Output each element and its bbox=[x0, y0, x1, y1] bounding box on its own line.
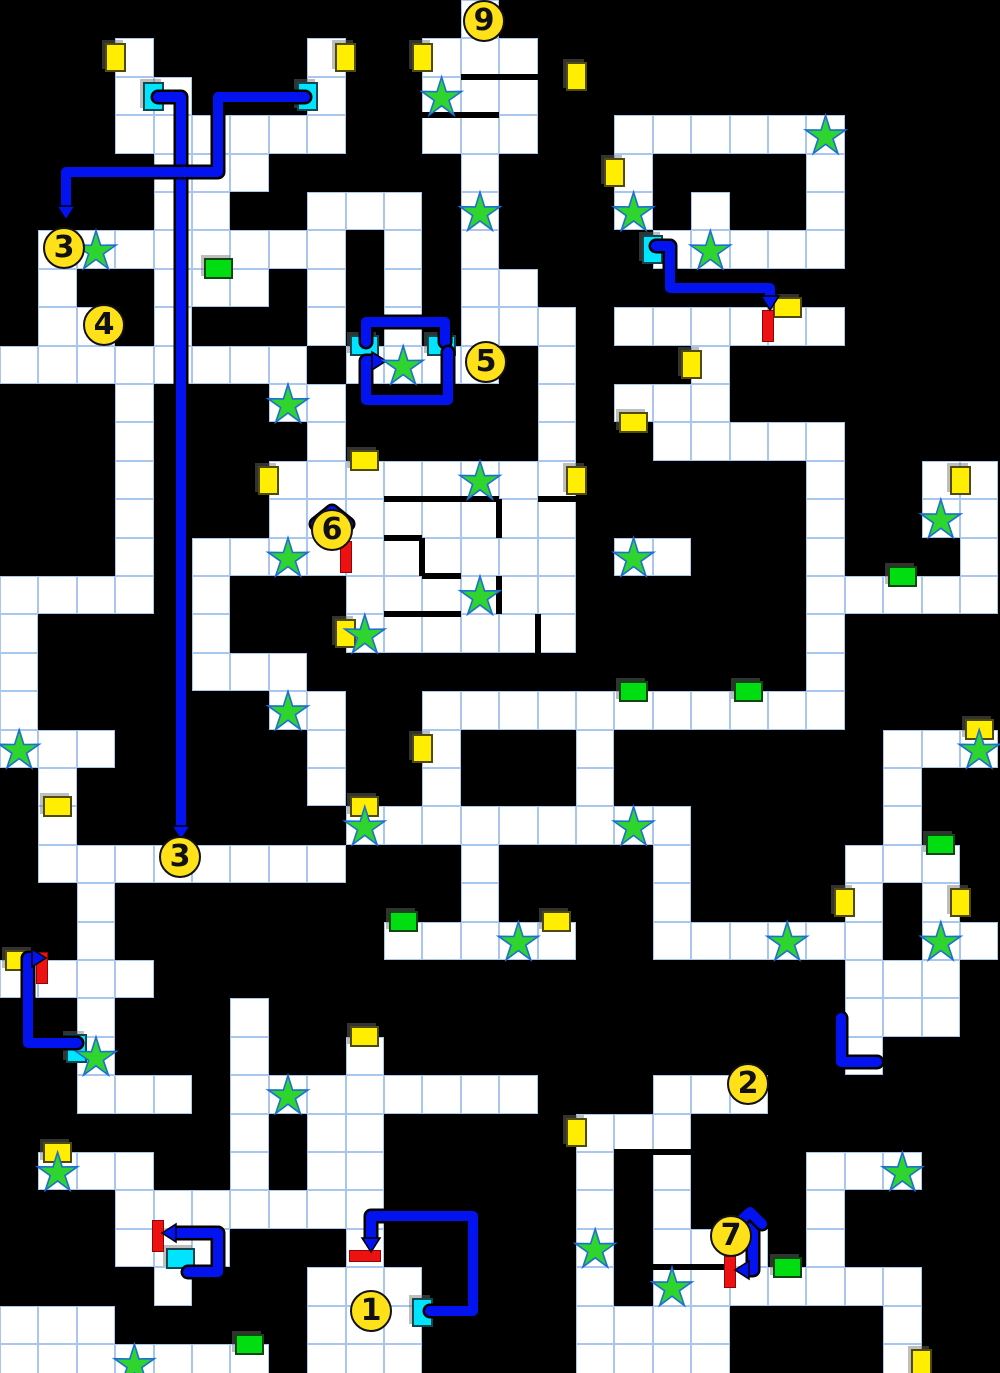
floor-cell bbox=[806, 1190, 844, 1228]
floor-cell bbox=[230, 269, 268, 307]
dungeon-map: 934563271 bbox=[0, 0, 1000, 1373]
floor-cell bbox=[115, 499, 153, 537]
floor-cell bbox=[154, 230, 192, 268]
floor-cell bbox=[77, 998, 115, 1036]
door-green-icon bbox=[773, 1257, 802, 1278]
floor-cell bbox=[154, 346, 192, 384]
floor-cell bbox=[230, 346, 268, 384]
floor-cell bbox=[422, 499, 460, 537]
floor-cell bbox=[422, 614, 460, 652]
floor-cell bbox=[691, 307, 729, 345]
floor-cell bbox=[384, 346, 422, 384]
floor-cell bbox=[461, 230, 499, 268]
lock-bar-red-icon bbox=[152, 1220, 164, 1252]
floor-cell bbox=[538, 538, 576, 576]
floor-cell bbox=[806, 922, 844, 960]
floor-cell bbox=[499, 38, 537, 76]
floor-cell bbox=[691, 115, 729, 153]
floor-cell bbox=[922, 998, 960, 1036]
floor-cell bbox=[269, 691, 307, 729]
floor-cell bbox=[614, 538, 652, 576]
floor-cell bbox=[115, 1152, 153, 1190]
floor-cell bbox=[883, 806, 921, 844]
floor-cell bbox=[77, 922, 115, 960]
floor-cell bbox=[307, 307, 345, 345]
floor-cell bbox=[422, 922, 460, 960]
maze-wall bbox=[422, 112, 499, 118]
door-green-icon bbox=[734, 681, 763, 702]
floor-cell bbox=[307, 1114, 345, 1152]
floor-cell bbox=[653, 1344, 691, 1373]
lock-bar-red-icon bbox=[724, 1256, 736, 1288]
door-cyan-icon bbox=[143, 82, 164, 111]
floor-cell bbox=[461, 115, 499, 153]
floor-cell bbox=[499, 269, 537, 307]
floor-cell bbox=[269, 1075, 307, 1113]
floor-cell bbox=[346, 1114, 384, 1152]
stairs-number: 2 bbox=[738, 1069, 759, 1099]
stairs-number: 4 bbox=[94, 310, 115, 340]
floor-cell bbox=[422, 461, 460, 499]
floor-cell bbox=[768, 230, 806, 268]
floor-cell bbox=[653, 691, 691, 729]
floor-cell bbox=[115, 1075, 153, 1113]
door-yellow-icon bbox=[350, 450, 379, 471]
floor-cell bbox=[77, 1075, 115, 1113]
floor-cell bbox=[384, 499, 422, 537]
floor-cell bbox=[307, 730, 345, 768]
floor-cell bbox=[538, 806, 576, 844]
stairs-marker: 6 bbox=[311, 509, 353, 551]
maze-wall bbox=[384, 535, 422, 541]
floor-cell bbox=[845, 922, 883, 960]
door-yellow-icon bbox=[335, 619, 356, 648]
floor-cell bbox=[922, 922, 960, 960]
floor-cell bbox=[346, 1075, 384, 1113]
door-yellow-icon bbox=[950, 466, 971, 495]
door-cyan-icon bbox=[66, 1034, 87, 1063]
floor-cell bbox=[0, 691, 38, 729]
floor-cell bbox=[806, 461, 844, 499]
floor-cell bbox=[806, 499, 844, 537]
floor-cell bbox=[230, 538, 268, 576]
floor-cell bbox=[499, 614, 537, 652]
floor-cell bbox=[422, 691, 460, 729]
floor-cell bbox=[192, 653, 230, 691]
floor-cell bbox=[960, 576, 998, 614]
floor-cell bbox=[230, 1075, 268, 1113]
floor-cell bbox=[192, 1190, 230, 1228]
floor-cell bbox=[845, 1152, 883, 1190]
floor-cell bbox=[691, 1075, 729, 1113]
floor-cell bbox=[77, 576, 115, 614]
stairs-number: 6 bbox=[322, 515, 343, 545]
floor-cell bbox=[653, 883, 691, 921]
door-yellow-icon bbox=[773, 297, 802, 318]
floor-cell bbox=[38, 346, 76, 384]
floor-cell bbox=[883, 998, 921, 1036]
floor-cell bbox=[538, 384, 576, 422]
floor-cell bbox=[883, 960, 921, 998]
floor-cell bbox=[768, 691, 806, 729]
floor-cell bbox=[576, 1229, 614, 1267]
floor-cell bbox=[653, 1190, 691, 1228]
floor-cell bbox=[845, 845, 883, 883]
floor-cell bbox=[922, 499, 960, 537]
door-yellow-icon bbox=[412, 734, 433, 763]
floor-cell bbox=[461, 576, 499, 614]
floor-cell bbox=[115, 422, 153, 460]
door-yellow-icon bbox=[950, 888, 971, 917]
floor-cell bbox=[538, 691, 576, 729]
floor-cell bbox=[538, 576, 576, 614]
floor-cell bbox=[538, 422, 576, 460]
maze-wall bbox=[461, 74, 538, 80]
floor-cell bbox=[0, 346, 38, 384]
floor-cell bbox=[806, 576, 844, 614]
floor-cell bbox=[614, 1306, 652, 1344]
shortcut-arrowhead-icon bbox=[57, 206, 75, 220]
floor-cell bbox=[461, 614, 499, 652]
stairs-marker: 3 bbox=[159, 836, 201, 878]
floor-cell bbox=[883, 1306, 921, 1344]
floor-cell bbox=[691, 422, 729, 460]
floor-cell bbox=[653, 922, 691, 960]
floor-cell bbox=[307, 1306, 345, 1344]
stairs-number: 7 bbox=[721, 1221, 742, 1251]
floor-cell bbox=[499, 307, 537, 345]
door-yellow-icon bbox=[43, 796, 72, 817]
floor-cell bbox=[499, 499, 537, 537]
door-green-icon bbox=[926, 834, 955, 855]
floor-cell bbox=[192, 346, 230, 384]
floor-cell bbox=[154, 1075, 192, 1113]
floor-cell bbox=[614, 1114, 652, 1152]
floor-cell bbox=[576, 1190, 614, 1228]
floor-cell bbox=[576, 730, 614, 768]
stairs-number: 3 bbox=[170, 842, 191, 872]
floor-cell bbox=[0, 576, 38, 614]
floor-cell bbox=[691, 384, 729, 422]
floor-cell bbox=[115, 960, 153, 998]
floor-cell bbox=[653, 538, 691, 576]
floor-cell bbox=[922, 576, 960, 614]
floor-cell bbox=[806, 422, 844, 460]
floor-cell bbox=[461, 307, 499, 345]
floor-cell bbox=[307, 768, 345, 806]
floor-cell bbox=[384, 1075, 422, 1113]
floor-cell bbox=[653, 1229, 691, 1267]
floor-cell bbox=[422, 576, 460, 614]
floor-cell bbox=[845, 960, 883, 998]
door-cyan-icon bbox=[297, 82, 318, 111]
floor-cell bbox=[38, 269, 76, 307]
door-yellow-icon bbox=[566, 62, 587, 91]
floor-cell bbox=[499, 691, 537, 729]
floor-cell bbox=[269, 845, 307, 883]
floor-cell bbox=[461, 461, 499, 499]
floor-cell bbox=[499, 461, 537, 499]
floor-cell bbox=[230, 653, 268, 691]
floor-cell bbox=[806, 1229, 844, 1267]
floor-cell bbox=[422, 1075, 460, 1113]
floor-cell bbox=[346, 1190, 384, 1228]
floor-cell bbox=[653, 115, 691, 153]
floor-cell bbox=[307, 1075, 345, 1113]
floor-cell bbox=[384, 614, 422, 652]
door-yellow-icon bbox=[335, 43, 356, 72]
floor-cell bbox=[38, 576, 76, 614]
floor-cell bbox=[77, 346, 115, 384]
floor-cell bbox=[307, 845, 345, 883]
floor-cell bbox=[384, 461, 422, 499]
stairs-marker: 3 bbox=[43, 227, 85, 269]
floor-cell bbox=[883, 1267, 921, 1305]
floor-cell bbox=[576, 1344, 614, 1373]
floor-cell bbox=[499, 115, 537, 153]
floor-cell bbox=[192, 538, 230, 576]
door-yellow-icon bbox=[43, 1142, 72, 1163]
door-yellow-icon bbox=[911, 1349, 932, 1373]
stairs-marker: 7 bbox=[710, 1215, 752, 1257]
floor-cell bbox=[115, 1344, 153, 1373]
floor-cell bbox=[384, 307, 422, 345]
floor-cell bbox=[115, 538, 153, 576]
door-green-icon bbox=[235, 1334, 264, 1355]
floor-cell bbox=[576, 1152, 614, 1190]
floor-cell bbox=[883, 730, 921, 768]
maze-wall bbox=[538, 496, 576, 502]
floor-cell bbox=[883, 1152, 921, 1190]
door-yellow-icon bbox=[105, 43, 126, 72]
stairs-marker: 4 bbox=[83, 304, 125, 346]
door-yellow-icon bbox=[566, 1118, 587, 1147]
floor-cell bbox=[346, 1344, 384, 1373]
maze-wall bbox=[653, 1264, 730, 1270]
stairs-number: 3 bbox=[54, 233, 75, 263]
floor-cell bbox=[422, 768, 460, 806]
floor-cell bbox=[691, 1344, 729, 1373]
floor-cell bbox=[806, 154, 844, 192]
floor-cell bbox=[730, 230, 768, 268]
floor-cell bbox=[0, 653, 38, 691]
floor-cell bbox=[806, 307, 844, 345]
stairs-marker: 5 bbox=[465, 341, 507, 383]
floor-cell bbox=[77, 1344, 115, 1373]
floor-cell bbox=[192, 192, 230, 230]
floor-cell bbox=[461, 154, 499, 192]
floor-cell bbox=[307, 1190, 345, 1228]
floor-cell bbox=[806, 538, 844, 576]
floor-cell bbox=[154, 192, 192, 230]
lock-bar-red-icon bbox=[349, 1250, 381, 1262]
floor-cell bbox=[806, 230, 844, 268]
lock-bar-red-icon bbox=[762, 310, 774, 342]
floor-cell bbox=[38, 1344, 76, 1373]
door-yellow-icon bbox=[604, 158, 625, 187]
floor-cell bbox=[499, 806, 537, 844]
floor-cell bbox=[653, 384, 691, 422]
floor-cell bbox=[230, 845, 268, 883]
floor-cell bbox=[499, 77, 537, 115]
floor-cell bbox=[269, 346, 307, 384]
floor-cell bbox=[230, 1037, 268, 1075]
floor-cell bbox=[384, 1344, 422, 1373]
floor-cell bbox=[614, 806, 652, 844]
floor-cell bbox=[115, 115, 153, 153]
maze-wall bbox=[419, 538, 425, 576]
maze-wall bbox=[496, 576, 502, 614]
floor-cell bbox=[653, 1306, 691, 1344]
stairs-marker: 9 bbox=[463, 0, 505, 42]
floor-cell bbox=[307, 461, 345, 499]
door-cyan-icon bbox=[412, 1298, 433, 1327]
maze-wall bbox=[384, 611, 461, 617]
floor-cell bbox=[461, 499, 499, 537]
floor-cell bbox=[192, 1344, 230, 1373]
floor-cell bbox=[192, 115, 230, 153]
floor-cell bbox=[115, 1190, 153, 1228]
floor-cell bbox=[806, 691, 844, 729]
maze-wall bbox=[496, 499, 502, 537]
door-cyan-icon bbox=[642, 235, 663, 264]
floor-cell bbox=[307, 192, 345, 230]
floor-cell bbox=[38, 307, 76, 345]
floor-cell bbox=[230, 998, 268, 1036]
floor-cell bbox=[461, 77, 499, 115]
floor-cell bbox=[384, 538, 422, 576]
floor-cell bbox=[691, 1306, 729, 1344]
floor-cell bbox=[806, 1267, 844, 1305]
floor-cell bbox=[806, 115, 844, 153]
floor-cell bbox=[691, 922, 729, 960]
floor-cell bbox=[230, 115, 268, 153]
floor-cell bbox=[614, 192, 652, 230]
floor-cell bbox=[307, 691, 345, 729]
door-yellow-icon bbox=[412, 43, 433, 72]
floor-cell bbox=[538, 346, 576, 384]
floor-cell bbox=[38, 845, 76, 883]
door-yellow-icon bbox=[566, 466, 587, 495]
floor-cell bbox=[768, 115, 806, 153]
floor-cell bbox=[422, 538, 460, 576]
floor-cell bbox=[346, 576, 384, 614]
stairs-number: 5 bbox=[476, 347, 497, 377]
floor-cell bbox=[230, 230, 268, 268]
door-cyan-icon bbox=[166, 1248, 195, 1269]
floor-cell bbox=[77, 1152, 115, 1190]
floor-cell bbox=[576, 691, 614, 729]
floor-cell bbox=[691, 192, 729, 230]
floor-cell bbox=[154, 307, 192, 345]
floor-cell bbox=[806, 614, 844, 652]
floor-cell bbox=[653, 1075, 691, 1113]
floor-cell bbox=[691, 691, 729, 729]
floor-cell bbox=[115, 845, 153, 883]
floor-cell bbox=[115, 384, 153, 422]
floor-cell bbox=[307, 422, 345, 460]
floor-cell bbox=[730, 922, 768, 960]
lock-bar-red-icon bbox=[36, 952, 48, 984]
floor-cell bbox=[614, 307, 652, 345]
stairs-number: 9 bbox=[474, 6, 495, 36]
floor-cell bbox=[384, 230, 422, 268]
stairs-marker: 2 bbox=[727, 1063, 769, 1105]
door-green-icon bbox=[204, 258, 233, 279]
floor-cell bbox=[422, 806, 460, 844]
door-yellow-icon bbox=[350, 1026, 379, 1047]
floor-cell bbox=[960, 499, 998, 537]
floor-cell bbox=[0, 1344, 38, 1373]
floor-cell bbox=[269, 230, 307, 268]
floor-cell bbox=[576, 1306, 614, 1344]
floor-cell bbox=[307, 115, 345, 153]
floor-cell bbox=[154, 269, 192, 307]
door-green-icon bbox=[888, 566, 917, 587]
floor-cell bbox=[115, 1229, 153, 1267]
floor-cell bbox=[192, 614, 230, 652]
floor-cell bbox=[422, 115, 460, 153]
floor-cell bbox=[461, 269, 499, 307]
door-yellow-icon bbox=[350, 796, 379, 817]
floor-cell bbox=[691, 230, 729, 268]
floor-cell bbox=[192, 576, 230, 614]
floor-cell bbox=[922, 730, 960, 768]
door-yellow-icon bbox=[681, 350, 702, 379]
floor-cell bbox=[307, 1344, 345, 1373]
door-yellow-icon bbox=[5, 950, 34, 971]
floor-cell bbox=[883, 768, 921, 806]
floor-cell bbox=[653, 845, 691, 883]
floor-cell bbox=[806, 653, 844, 691]
floor-cell bbox=[307, 384, 345, 422]
floor-cell bbox=[499, 576, 537, 614]
floor-cell bbox=[230, 1190, 268, 1228]
floor-cell bbox=[653, 1267, 691, 1305]
floor-cell bbox=[307, 1267, 345, 1305]
floor-cell bbox=[845, 576, 883, 614]
floor-cell bbox=[653, 1114, 691, 1152]
floor-cell bbox=[499, 1075, 537, 1113]
maze-wall bbox=[422, 573, 460, 579]
floor-cell bbox=[768, 922, 806, 960]
floor-cell bbox=[77, 730, 115, 768]
floor-cell bbox=[269, 653, 307, 691]
floor-cell bbox=[576, 768, 614, 806]
floor-cell bbox=[461, 883, 499, 921]
floor-cell bbox=[230, 1114, 268, 1152]
floor-cell bbox=[0, 1306, 38, 1344]
door-cyan-icon bbox=[350, 335, 379, 356]
floor-cell bbox=[384, 269, 422, 307]
floor-cell bbox=[845, 1037, 883, 1075]
floor-cell bbox=[77, 1306, 115, 1344]
door-yellow-icon bbox=[619, 412, 648, 433]
door-green-icon bbox=[619, 681, 648, 702]
floor-cell bbox=[384, 576, 422, 614]
floor-cell bbox=[115, 230, 153, 268]
floor-cell bbox=[461, 192, 499, 230]
floor-cell bbox=[730, 115, 768, 153]
floor-cell bbox=[269, 115, 307, 153]
floor-cell bbox=[77, 845, 115, 883]
floor-cell bbox=[307, 269, 345, 307]
floor-cell bbox=[269, 499, 307, 537]
floor-cell bbox=[538, 307, 576, 345]
maze-wall bbox=[614, 1149, 691, 1155]
floor-cell bbox=[768, 422, 806, 460]
floor-cell bbox=[192, 1229, 230, 1267]
